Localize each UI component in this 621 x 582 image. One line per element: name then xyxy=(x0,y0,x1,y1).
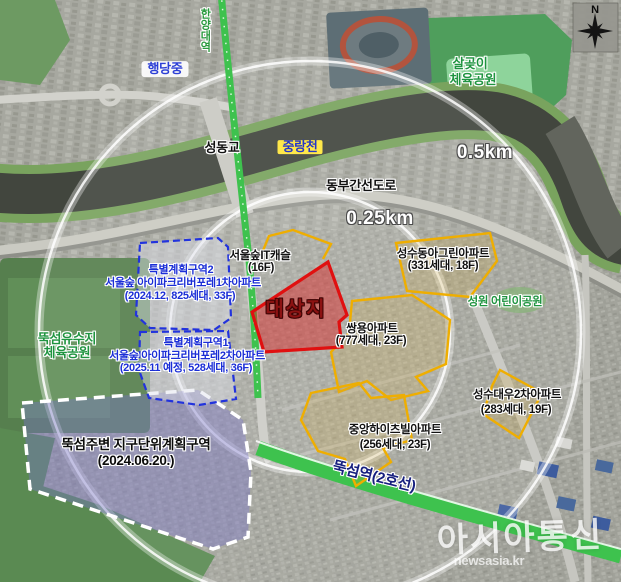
label-special-zone1-detail: (2025.11 예정, 528세대, 36F) xyxy=(120,363,252,375)
satellite-map: 행당중 한양대역 성동교 중랑천 동부간선도로 0.5km 0.25km 살곶이… xyxy=(0,0,621,582)
label-apartment-dongagreen-detail: (331세대, 18F) xyxy=(408,260,479,272)
label-apartment-dongagreen-name: 성수동아그린아파트 xyxy=(397,248,490,260)
label-hangdang-school: 행당중 xyxy=(142,61,189,77)
label-apartment-daewoo-name: 성수대우2차아파트 xyxy=(473,389,561,401)
label-yusuji-park-2: 체육공원 xyxy=(44,346,91,360)
label-seongdong-bridge: 성동교 xyxy=(205,141,240,155)
label-salgoji-park-1: 살곶이 xyxy=(453,57,488,71)
label-apartment-ssangyong-detail: (777세대, 23F) xyxy=(336,335,407,347)
label-special-zone2-title: 특별계획구역2 xyxy=(149,265,214,277)
label-apartment-jungang-name: 중앙하이츠빌아파트 xyxy=(349,424,442,436)
label-special-zone2-detail: (2024.12, 825세대, 33F) xyxy=(125,291,236,303)
label-special-zone1-name: 서울숲 아이파크리버포레2차아파트 xyxy=(109,351,265,363)
label-district-zone-detail: (2024.06.20.) xyxy=(98,454,174,468)
label-apartment-itcastle-detail: (16F) xyxy=(248,262,274,274)
watermark-domain: newsasia.kr xyxy=(454,554,524,568)
label-salgoji-park-2: 체육공원 xyxy=(450,73,497,87)
label-district-zone-title: 뚝섬주변 지구단위계획구역 xyxy=(62,438,211,452)
label-target-site: 대상지 xyxy=(265,300,326,321)
label-apartment-ssangyong-name: 쌍용아파트 xyxy=(346,323,397,335)
label-ring-500m: 0.5km xyxy=(457,143,513,163)
label-dongbu-expressway: 동부간선도로 xyxy=(326,179,396,193)
compass-north-label: N xyxy=(591,5,599,17)
label-apartment-daewoo-detail: (283세대, 19F) xyxy=(481,404,552,416)
label-jungnang-stream: 중랑천 xyxy=(278,140,323,154)
label-apartment-itcastle-name: 서울숲IT캐슬 xyxy=(229,250,290,262)
map-labels: 행당중 한양대역 성동교 중랑천 동부간선도로 0.5km 0.25km 살곶이… xyxy=(0,0,621,582)
label-yusuji-park-1: 뚝섬유수지 xyxy=(38,332,96,346)
label-special-zone2-name: 서울숲 아이파크리버포레1차아파트 xyxy=(105,278,261,290)
label-ring-250m: 0.25km xyxy=(346,209,413,229)
label-special-zone1-title: 특별계획구역1 xyxy=(164,338,229,350)
label-apartment-jungang-detail: (256세대, 23F) xyxy=(360,439,431,451)
label-ttukseom-station: 뚝섬역(2호선) xyxy=(331,459,417,495)
label-hanyang-station: 한양대역 xyxy=(198,8,210,52)
label-seongwon-park: 성원 어린이공원 xyxy=(468,296,543,308)
